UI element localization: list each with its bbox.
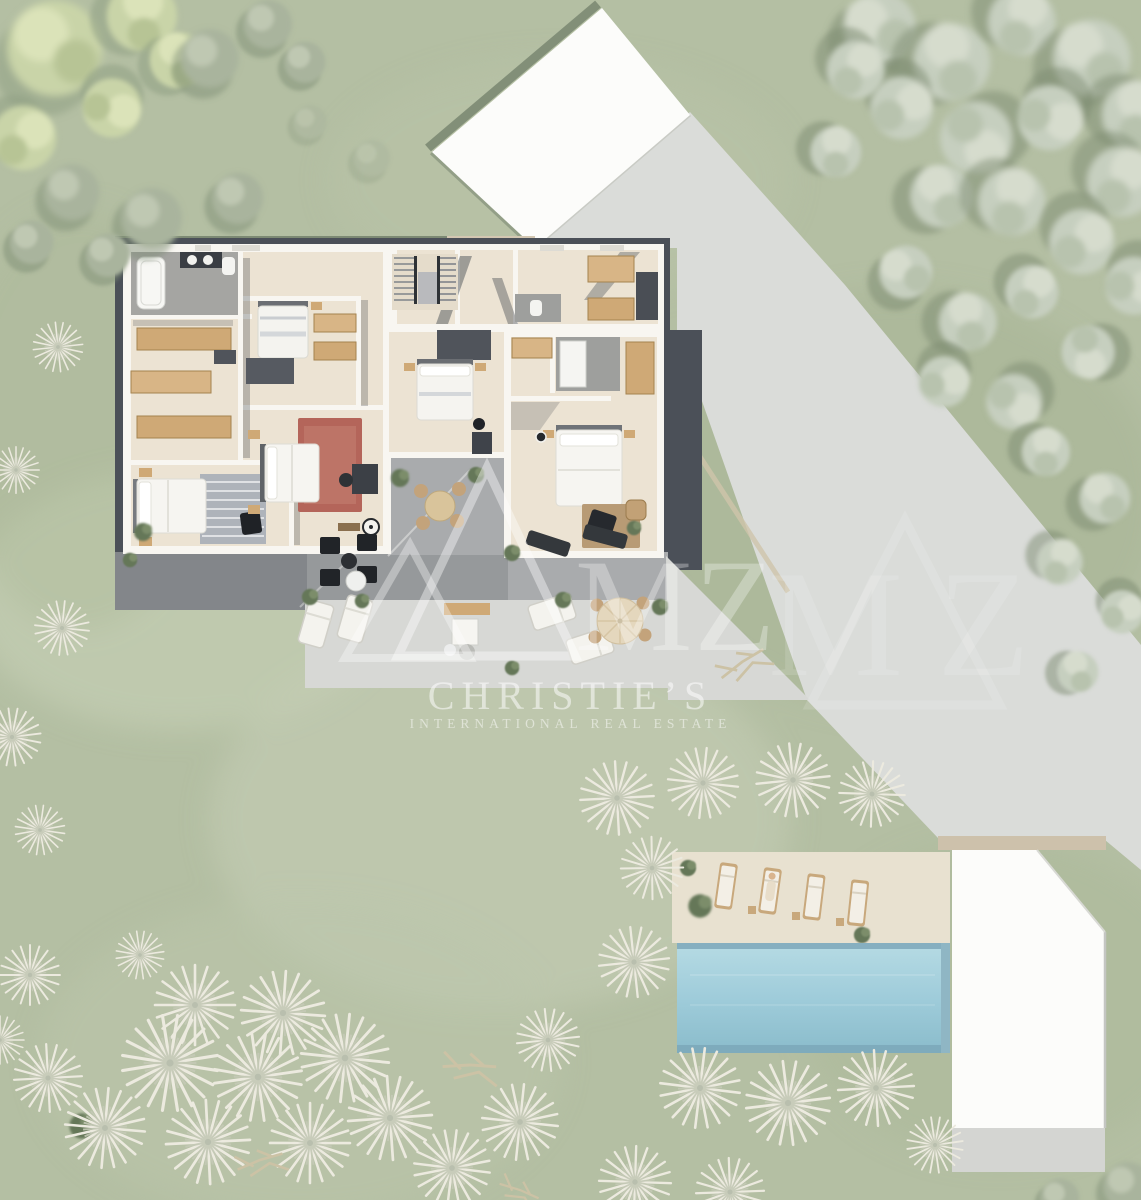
side-table [792,912,800,920]
parasol-dining-set [589,597,652,645]
armchair [240,511,263,536]
nightstand [404,363,415,371]
nightstand [248,505,260,514]
wicker-chair [626,500,646,520]
console [338,523,360,531]
pool-house-terrace [952,1128,1105,1172]
wardrobe [512,338,552,358]
sink [187,255,197,265]
door-opening [540,245,564,251]
wardrobe [131,371,211,393]
pillows [420,366,470,376]
desk [352,464,378,494]
dining-table [425,491,455,521]
floor-lamp-center [369,525,373,529]
nightstand [475,363,486,371]
terrace-concrete-dark [115,552,307,610]
bench [472,432,492,454]
shower [560,341,586,387]
side-table [748,906,756,914]
cabinet [588,298,634,320]
nightstand [311,302,322,310]
nightstand [248,430,260,439]
pouf [473,418,485,430]
stair-railing [414,256,417,304]
toilet [222,257,235,275]
swimming-pool [677,943,950,1053]
pillows [560,434,618,446]
site-plan-canvas [0,0,1141,1200]
parasol-pole [618,619,623,624]
black-armchair [320,569,340,586]
stair-railing [437,256,440,304]
desk-chair [339,473,353,487]
nightstand [139,468,152,477]
wardrobe-tall [626,342,654,394]
door-opening [232,245,260,251]
chair [416,516,430,530]
wardrobe [137,328,231,350]
black-armchair [320,537,340,554]
vanity [180,252,222,268]
chair [414,484,428,498]
pillows [139,482,151,530]
wardrobe-tall [636,272,658,320]
wardrobe [314,342,356,360]
wardrobe [314,314,356,332]
wardrobe [437,330,491,360]
round-table [346,571,366,591]
chair [452,482,466,496]
toilet [530,300,542,316]
coffee-table [341,553,357,569]
stair-landing [418,272,438,304]
black-armchair [357,534,377,551]
door-opening [195,245,211,251]
nightstand [624,430,635,438]
aerial-site-plan: MZ MZ CHRISTIE’S INTERNATIONAL REAL ESTA… [0,0,1141,1200]
wardrobe [137,416,231,438]
staircase [392,254,458,310]
pool-edge-shadow [941,943,950,1053]
sink [203,255,213,265]
dresser [214,350,236,364]
side-table [836,918,844,926]
bathroom [131,252,238,315]
closet [246,358,294,384]
cabinet [588,256,634,282]
floor-lamp [536,432,546,442]
door-opening [600,245,624,251]
pool-edge-shadow [677,943,950,949]
gravel-strip [938,836,1106,850]
console [444,603,490,615]
pillows [267,447,277,499]
